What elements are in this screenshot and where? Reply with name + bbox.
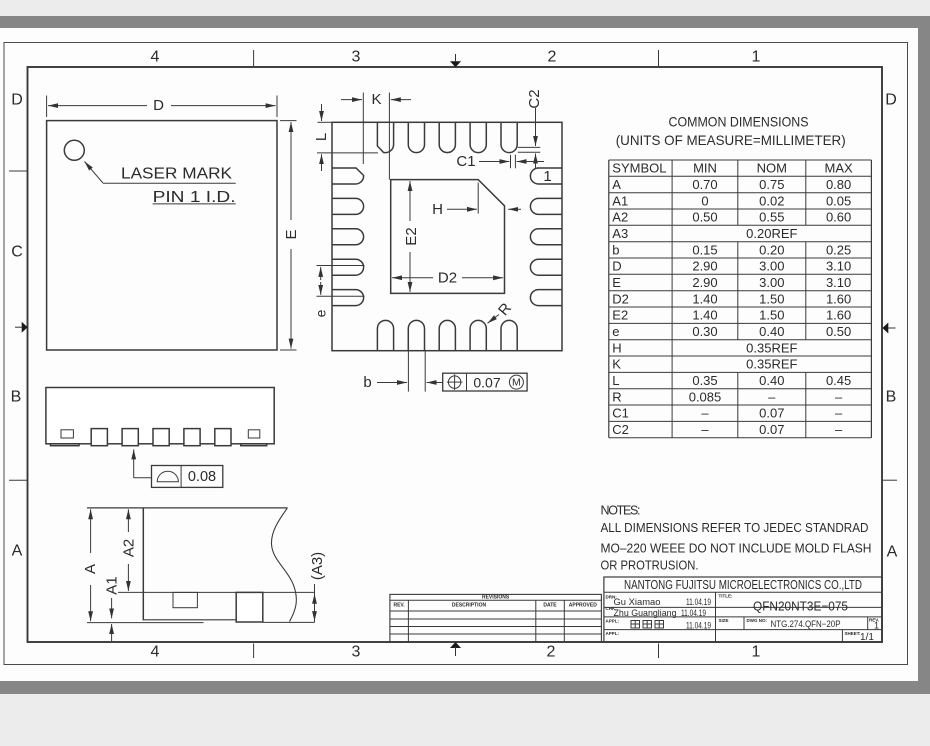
svg-text:e: e xyxy=(612,324,619,339)
svg-text:COMMON DIMENSIONS: COMMON DIMENSIONS xyxy=(669,114,809,130)
svg-text:E: E xyxy=(612,275,621,290)
svg-text:L: L xyxy=(612,373,619,388)
svg-text:MO–220 WEEE DO NOT INCLUDE MOL: MO–220 WEEE DO NOT INCLUDE MOLD FLASH xyxy=(601,541,872,555)
svg-text:D: D xyxy=(885,92,897,109)
svg-text:b: b xyxy=(363,374,371,391)
svg-text:0.50: 0.50 xyxy=(826,324,851,339)
svg-text:E: E xyxy=(283,229,300,239)
svg-text:11.04.19: 11.04.19 xyxy=(686,597,711,607)
svg-text:0.50: 0.50 xyxy=(692,210,717,225)
svg-text:R: R xyxy=(612,389,621,404)
svg-text:0.05: 0.05 xyxy=(826,193,851,208)
svg-text:4: 4 xyxy=(151,644,160,661)
svg-text:A: A xyxy=(12,543,23,560)
svg-text:DESCRIPTION: DESCRIPTION xyxy=(452,603,487,609)
svg-text:E2: E2 xyxy=(403,227,420,245)
svg-text:11.04.19: 11.04.19 xyxy=(681,608,706,618)
svg-text:D: D xyxy=(612,259,621,274)
svg-text:SYMBOL: SYMBOL xyxy=(612,161,666,176)
svg-text:1.60: 1.60 xyxy=(826,291,851,306)
svg-text:D: D xyxy=(11,92,23,109)
svg-text:A1: A1 xyxy=(612,193,628,208)
svg-text:3: 3 xyxy=(352,49,361,66)
svg-text:4: 4 xyxy=(151,49,160,66)
svg-text:APPROVED: APPROVED xyxy=(569,603,597,609)
svg-text:REVISIONS: REVISIONS xyxy=(482,594,510,600)
svg-text:A3: A3 xyxy=(612,226,628,241)
svg-text:E2: E2 xyxy=(612,308,628,323)
svg-text:NOM: NOM xyxy=(757,161,787,176)
svg-text:0.07: 0.07 xyxy=(759,422,784,437)
svg-text:C1: C1 xyxy=(612,406,629,421)
svg-text:3.10: 3.10 xyxy=(826,275,851,290)
svg-text:SIZE: SIZE xyxy=(719,618,729,623)
svg-text:C2: C2 xyxy=(526,89,543,108)
svg-text:2: 2 xyxy=(547,644,556,661)
svg-text:DWG NO:: DWG NO: xyxy=(747,618,768,623)
svg-text:Gu Xiamao: Gu Xiamao xyxy=(614,597,661,608)
svg-text:(UNITS OF MEASURE=MILLIMETER): (UNITS OF MEASURE=MILLIMETER) xyxy=(616,132,846,148)
svg-text:0.07: 0.07 xyxy=(759,406,784,421)
svg-text:B: B xyxy=(886,389,897,406)
svg-text:M: M xyxy=(512,377,521,389)
svg-text:–: – xyxy=(835,406,843,421)
svg-text:A: A xyxy=(887,544,898,561)
svg-text:R: R xyxy=(495,300,515,319)
svg-text:3.00: 3.00 xyxy=(759,259,784,274)
svg-text:D2: D2 xyxy=(612,291,629,306)
svg-text:C2: C2 xyxy=(612,422,629,437)
svg-text:3.10: 3.10 xyxy=(826,259,851,274)
svg-text:0.30: 0.30 xyxy=(692,324,717,339)
svg-text:0.35REF: 0.35REF xyxy=(746,357,797,372)
svg-text:C: C xyxy=(11,244,23,261)
svg-text:0.55: 0.55 xyxy=(759,210,784,225)
svg-text:2: 2 xyxy=(548,49,557,66)
svg-text:0.35REF: 0.35REF xyxy=(746,340,797,355)
svg-text:b: b xyxy=(612,242,619,257)
svg-text:0.085: 0.085 xyxy=(689,389,722,404)
svg-text:0.35: 0.35 xyxy=(692,373,717,388)
svg-text:MIN: MIN xyxy=(693,161,717,176)
svg-text:1.50: 1.50 xyxy=(759,291,784,306)
svg-text:1: 1 xyxy=(752,49,761,66)
svg-text:0.70: 0.70 xyxy=(692,177,717,192)
svg-text:D2: D2 xyxy=(438,269,457,286)
svg-text:0.45: 0.45 xyxy=(826,373,851,388)
svg-text:DATE: DATE xyxy=(543,603,557,609)
svg-text:–: – xyxy=(768,389,776,404)
svg-text:NTG.274.QFN−20P: NTG.274.QFN−20P xyxy=(771,619,841,629)
svg-text:A: A xyxy=(612,177,621,192)
svg-text:B: B xyxy=(11,389,22,406)
svg-text:–: – xyxy=(701,406,709,421)
svg-text:0.40: 0.40 xyxy=(759,324,784,339)
svg-text:H: H xyxy=(432,201,443,218)
svg-text:REV.: REV. xyxy=(393,603,405,609)
svg-text:11.04.19: 11.04.19 xyxy=(686,621,711,631)
svg-text:Zhu Guangliang: Zhu Guangliang xyxy=(614,608,677,619)
svg-text:QFN20NT3E−075: QFN20NT3E−075 xyxy=(753,599,848,614)
svg-text:1.50: 1.50 xyxy=(759,308,784,323)
svg-text:K: K xyxy=(371,91,381,108)
svg-text:0.20: 0.20 xyxy=(759,242,784,257)
svg-text:2.90: 2.90 xyxy=(692,259,717,274)
svg-text:H: H xyxy=(612,340,621,355)
svg-text:0.07: 0.07 xyxy=(473,375,500,391)
svg-text:L: L xyxy=(313,133,330,141)
svg-text:1.40: 1.40 xyxy=(692,291,717,306)
svg-text:0: 0 xyxy=(701,193,708,208)
svg-text:0.80: 0.80 xyxy=(826,177,851,192)
svg-text:APPL:: APPL: xyxy=(606,618,620,623)
svg-text:NOTES:: NOTES: xyxy=(601,504,641,518)
svg-text:0.60: 0.60 xyxy=(826,210,851,225)
svg-text:A2: A2 xyxy=(120,539,137,557)
svg-text:0.40: 0.40 xyxy=(759,373,784,388)
svg-text:1: 1 xyxy=(543,168,551,185)
svg-text:A: A xyxy=(82,564,99,574)
svg-text:–: – xyxy=(835,422,843,437)
svg-text:PIN 1 I.D.: PIN 1 I.D. xyxy=(153,189,236,206)
svg-text:APPL:: APPL: xyxy=(606,631,620,636)
svg-text:ALL DIMENSIONS REFER TO JEDEC: ALL DIMENSIONS REFER TO JEDEC STANDRAD xyxy=(601,521,869,535)
svg-text:1.40: 1.40 xyxy=(692,308,717,323)
svg-text:e: e xyxy=(313,309,329,317)
svg-text:0.02: 0.02 xyxy=(759,193,784,208)
svg-text:3.00: 3.00 xyxy=(759,275,784,290)
svg-text:1: 1 xyxy=(752,644,761,661)
svg-text:0.25: 0.25 xyxy=(826,242,851,257)
svg-text:OR PROTRUSION.: OR PROTRUSION. xyxy=(601,559,699,573)
svg-text:0.75: 0.75 xyxy=(759,177,784,192)
svg-text:D: D xyxy=(153,97,164,114)
svg-text:0.08: 0.08 xyxy=(188,469,216,485)
svg-text:TITLE:: TITLE: xyxy=(719,594,733,599)
svg-text:0.15: 0.15 xyxy=(692,242,717,257)
svg-text:–: – xyxy=(835,389,843,404)
svg-text:C1: C1 xyxy=(456,153,475,170)
svg-text:(A3): (A3) xyxy=(309,552,326,580)
svg-text:SHEET:: SHEET: xyxy=(845,631,862,636)
svg-text:NANTONG FUJITSU MICROELECTRONI: NANTONG FUJITSU MICROELECTRONICS CO.,LTD xyxy=(624,578,862,592)
svg-text:MAX: MAX xyxy=(825,161,854,176)
svg-text:3: 3 xyxy=(352,644,361,661)
svg-text:1/1: 1/1 xyxy=(860,632,874,643)
svg-text:A2: A2 xyxy=(612,210,628,225)
svg-text:1.60: 1.60 xyxy=(826,308,851,323)
svg-text:2.90: 2.90 xyxy=(692,275,717,290)
svg-text:LASER MARK: LASER MARK xyxy=(121,166,232,183)
svg-text:1: 1 xyxy=(874,621,879,631)
svg-text:0.20REF: 0.20REF xyxy=(746,226,797,241)
svg-text:A1: A1 xyxy=(104,576,121,594)
svg-text:K: K xyxy=(612,357,621,372)
svg-text:–: – xyxy=(701,422,709,437)
